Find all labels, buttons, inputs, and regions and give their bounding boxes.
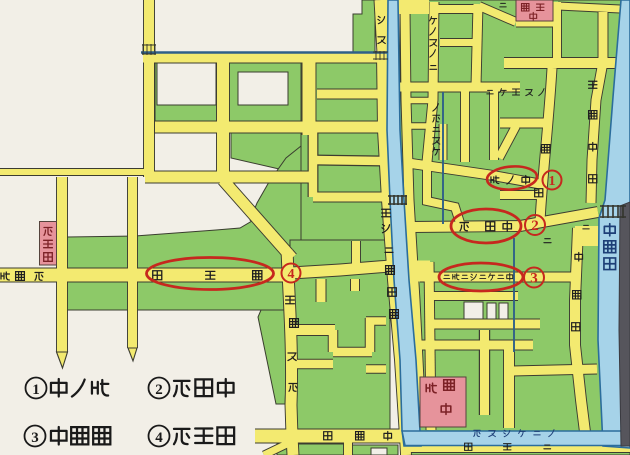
svg-text:3: 3	[530, 271, 538, 287]
svg-text:2: 2	[531, 218, 539, 234]
svg-text:1: 1	[32, 382, 40, 398]
svg-text:3: 3	[31, 430, 39, 446]
svg-text:4: 4	[155, 430, 163, 446]
svg-text:4: 4	[288, 267, 295, 282]
svg-text:2: 2	[155, 382, 163, 398]
svg-text:1: 1	[549, 174, 556, 189]
